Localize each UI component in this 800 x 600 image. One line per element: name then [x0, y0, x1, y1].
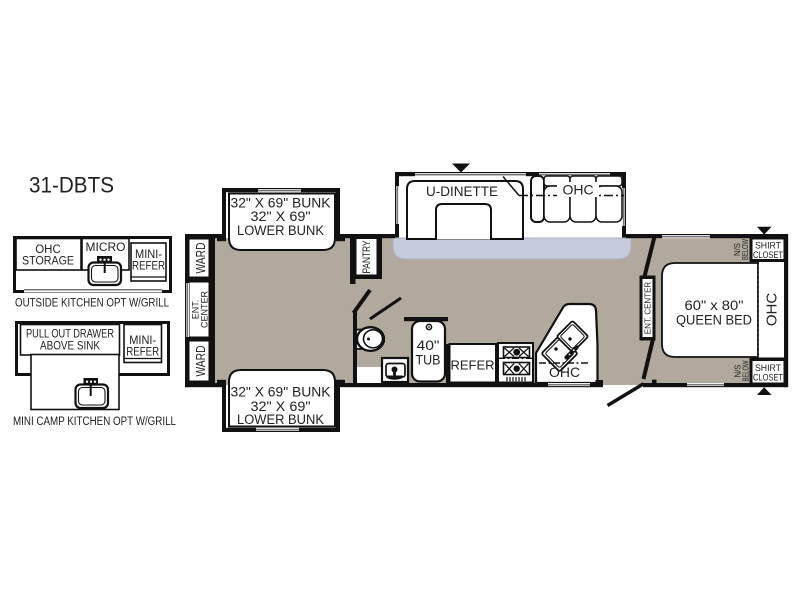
- svg-text:OHC: OHC: [562, 182, 593, 198]
- svg-text:CLOSET: CLOSET: [753, 250, 783, 261]
- svg-text:31-DBTS: 31-DBTS: [29, 173, 114, 198]
- svg-text:PULL OUT DRAWER: PULL OUT DRAWER: [26, 329, 114, 341]
- svg-text:REFER: REFER: [132, 261, 165, 273]
- svg-text:TUB: TUB: [416, 352, 441, 368]
- svg-text:OUTSIDE KITCHEN OPT W/GRILL: OUTSIDE KITCHEN OPT W/GRILL: [15, 296, 169, 310]
- svg-text:MINI-: MINI-: [135, 249, 162, 261]
- svg-text:WARD: WARD: [194, 346, 208, 377]
- svg-text:U-DINETTE: U-DINETTE: [426, 184, 498, 199]
- svg-text:MICRO: MICRO: [86, 242, 126, 254]
- svg-text:REFER: REFER: [126, 347, 159, 359]
- svg-text:REFER: REFER: [450, 358, 494, 373]
- svg-text:OHC: OHC: [549, 364, 580, 380]
- svg-text:QUEEN BED: QUEEN BED: [676, 312, 752, 328]
- svg-text:PANTRY: PANTRY: [361, 240, 373, 273]
- svg-text:BELOW: BELOW: [741, 360, 750, 381]
- svg-text:32" X 69" BUNK: 32" X 69" BUNK: [231, 385, 331, 400]
- svg-text:CENTER: CENTER: [200, 291, 210, 329]
- svg-text:32" X 69": 32" X 69": [251, 209, 311, 224]
- svg-text:OHC: OHC: [35, 244, 61, 256]
- svg-text:BELOW: BELOW: [741, 239, 750, 260]
- svg-text:MINI CAMP KITCHEN OPT W/GRILL: MINI CAMP KITCHEN OPT W/GRILL: [13, 414, 176, 428]
- svg-text:LOWER BUNK: LOWER BUNK: [237, 412, 324, 427]
- svg-text:CLOSET: CLOSET: [753, 372, 783, 383]
- svg-text:MINI-: MINI-: [129, 335, 156, 347]
- svg-text:OHC: OHC: [764, 293, 781, 327]
- svg-text:WARD: WARD: [194, 243, 208, 274]
- svg-text:STORAGE: STORAGE: [22, 256, 74, 268]
- svg-text:ENT. CENTER: ENT. CENTER: [643, 282, 652, 335]
- svg-text:ABOVE SINK: ABOVE SINK: [40, 341, 100, 353]
- svg-text:LOWER BUNK: LOWER BUNK: [237, 223, 324, 238]
